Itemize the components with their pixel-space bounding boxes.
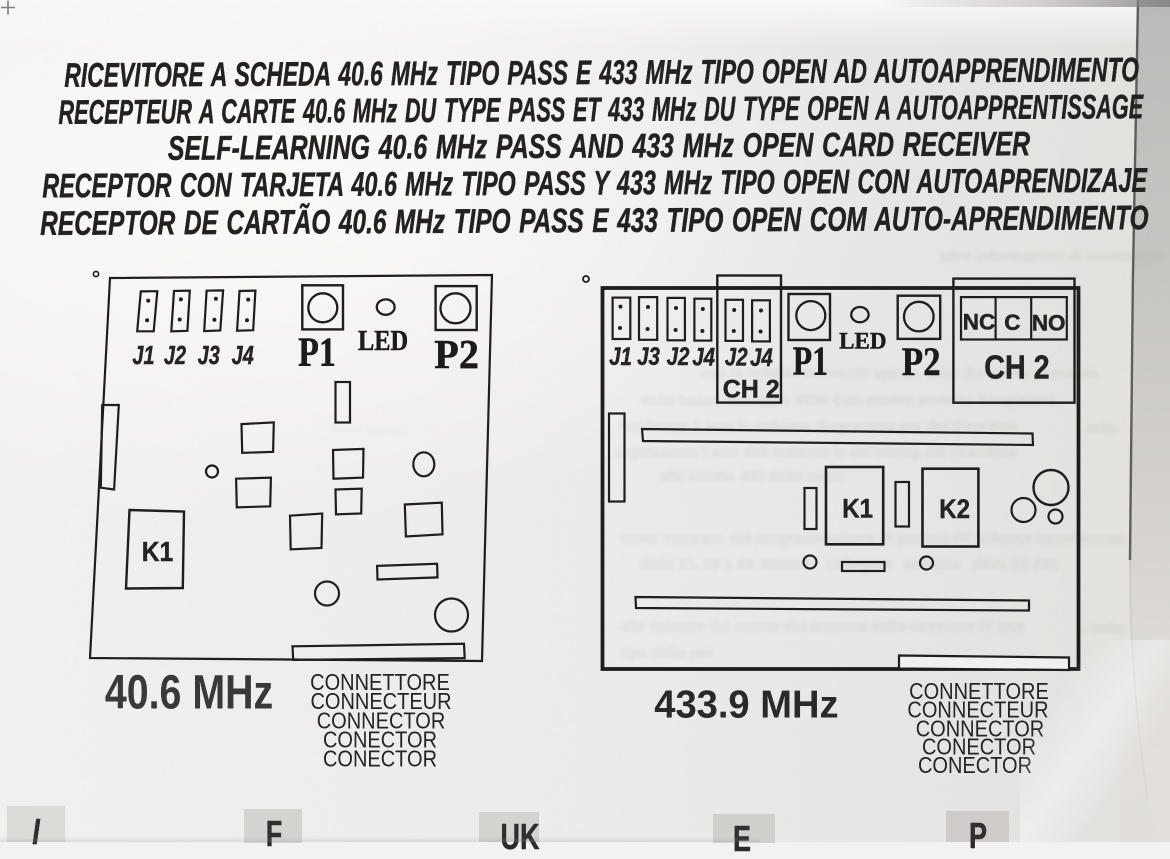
svg-text:J4: J4: [692, 342, 715, 370]
svg-text:CONECTOR: CONECTOR: [918, 752, 1032, 779]
svg-text:K1: K1: [142, 536, 173, 568]
svg-text:K2: K2: [939, 495, 970, 524]
svg-text:C: C: [1004, 310, 1020, 335]
svg-text:CONECTOR: CONECTOR: [323, 745, 437, 772]
svg-text:NC: NC: [963, 310, 996, 335]
svg-text:J3: J3: [637, 342, 660, 370]
svg-text:NO: NO: [1032, 311, 1066, 336]
svg-text:J4: J4: [750, 343, 773, 371]
svg-text:J1: J1: [132, 341, 154, 370]
svg-text:J2: J2: [725, 343, 748, 371]
svg-text:J2: J2: [164, 341, 186, 370]
svg-text:LED: LED: [839, 328, 886, 353]
svg-text:CH 2: CH 2: [723, 376, 780, 404]
svg-text:433.9 MHz: 433.9 MHz: [654, 683, 838, 726]
svg-text:P1: P1: [298, 329, 336, 375]
svg-text:J3: J3: [198, 341, 220, 370]
svg-text:P1: P1: [793, 338, 828, 384]
svg-text:P2: P2: [434, 332, 479, 378]
svg-text:J2: J2: [667, 342, 690, 370]
svg-text:40.6 MHz: 40.6 MHz: [105, 666, 273, 720]
svg-text:J4: J4: [232, 341, 254, 370]
svg-text:K1: K1: [842, 494, 873, 523]
svg-text:LED: LED: [358, 325, 408, 356]
svg-text:J1: J1: [609, 342, 632, 370]
svg-text:CH 2: CH 2: [984, 349, 1049, 386]
svg-text:P2: P2: [902, 340, 941, 385]
